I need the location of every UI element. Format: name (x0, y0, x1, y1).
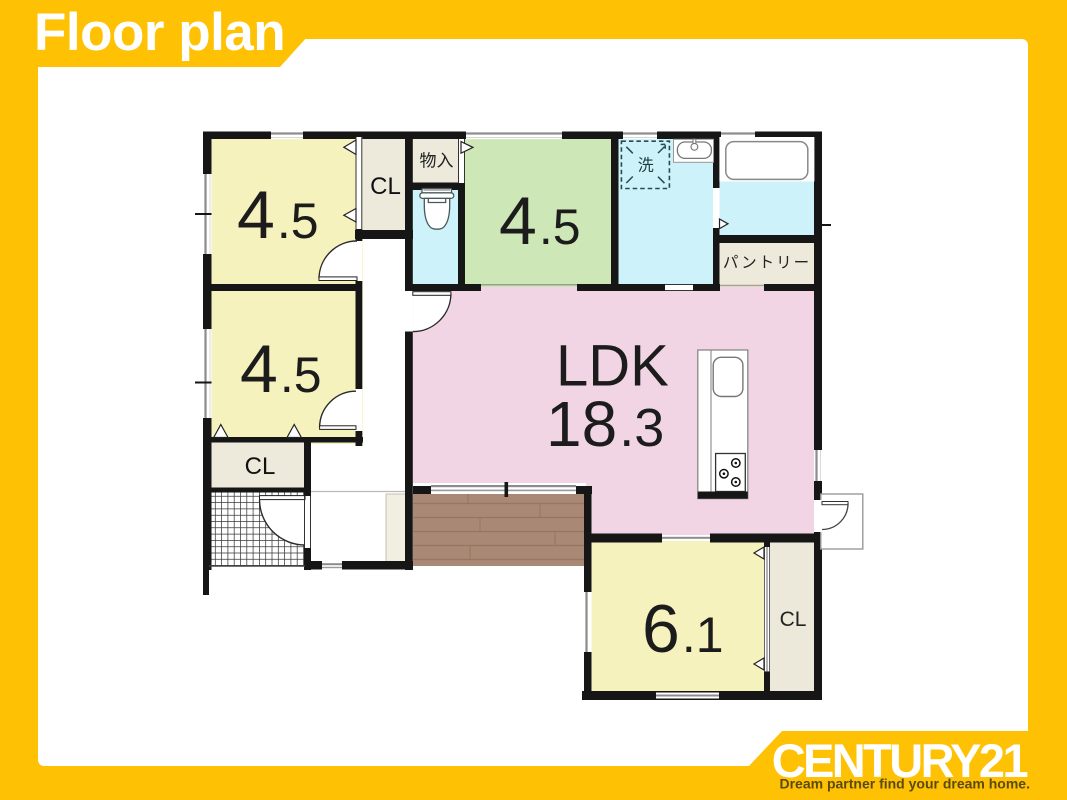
svg-text:CL: CL (370, 173, 401, 200)
svg-text:Floor plan: Floor plan (34, 3, 285, 62)
svg-text:物入: 物入 (420, 152, 454, 171)
svg-text:CL: CL (780, 608, 807, 631)
svg-text:Dream partner find your dream: Dream partner find your dream home. (779, 776, 1030, 792)
svg-text:パントリー: パントリー (723, 255, 811, 272)
svg-text:18.3: 18.3 (546, 388, 664, 460)
svg-text:CL: CL (245, 453, 276, 480)
svg-text:洗: 洗 (638, 157, 654, 175)
